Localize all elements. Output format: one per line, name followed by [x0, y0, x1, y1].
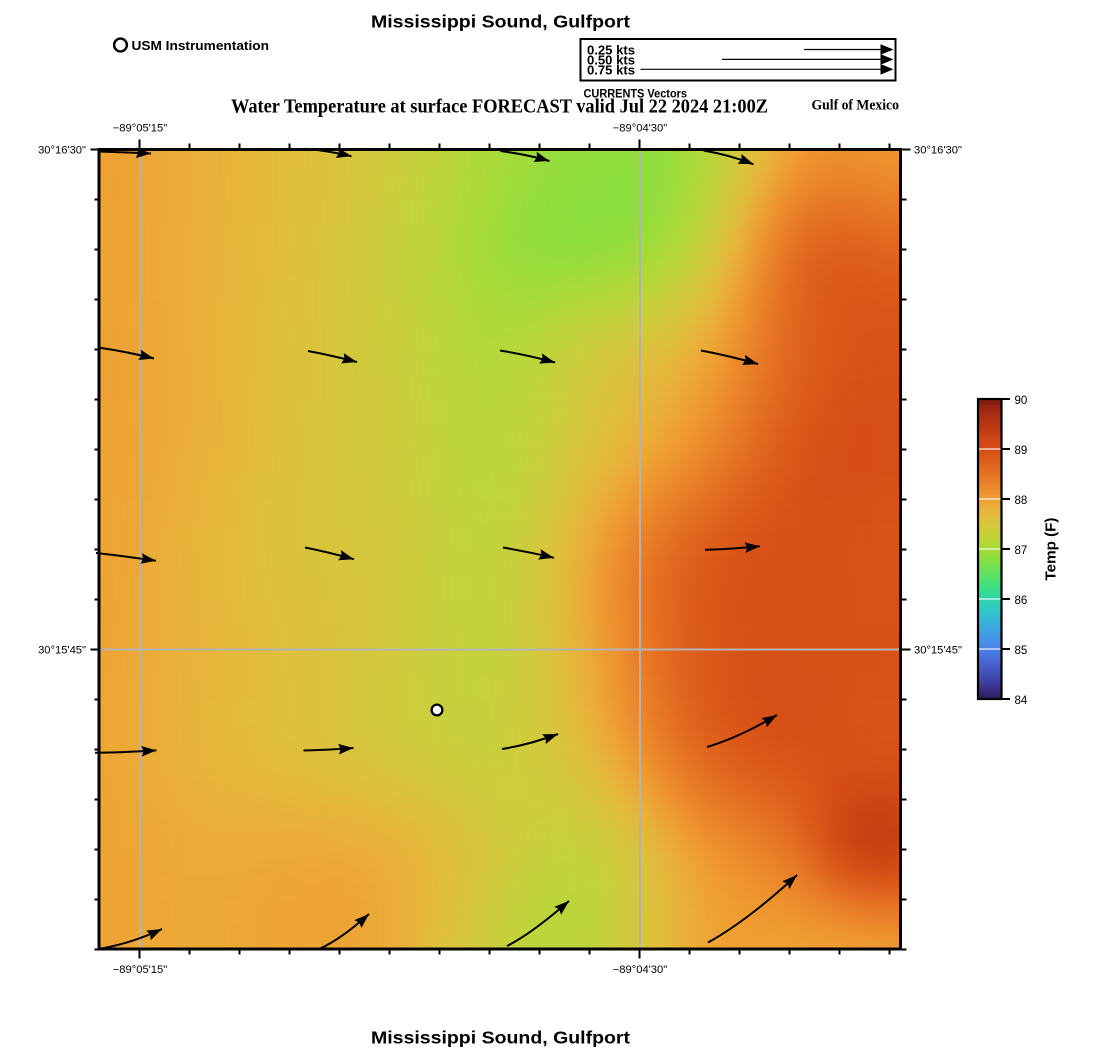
svg-text:90: 90: [1015, 395, 1028, 407]
svg-text:−89°04'30": −89°04'30": [613, 123, 667, 135]
svg-text:84: 84: [1015, 695, 1028, 707]
svg-text:0.75 kts: 0.75 kts: [587, 63, 635, 77]
svg-text:88: 88: [1015, 495, 1028, 507]
svg-text:Mississippi Sound, Gulfport: Mississippi Sound, Gulfport: [371, 11, 630, 31]
svg-text:30°15'45": 30°15'45": [914, 645, 962, 657]
svg-text:−89°05'15": −89°05'15": [113, 123, 167, 135]
svg-text:30°15'45": 30°15'45": [38, 645, 86, 657]
svg-text:Mississippi Sound, Gulfport: Mississippi Sound, Gulfport: [371, 1027, 630, 1047]
svg-text:86: 86: [1015, 595, 1028, 607]
svg-text:−89°05'15": −89°05'15": [113, 964, 167, 976]
svg-text:89: 89: [1015, 445, 1028, 457]
svg-text:30°16'30": 30°16'30": [914, 145, 962, 157]
svg-text:Water Temperature at surface F: Water Temperature at surface FORECAST va…: [231, 97, 768, 118]
svg-text:85: 85: [1015, 645, 1028, 657]
svg-text:Gulf of Mexico: Gulf of Mexico: [812, 97, 900, 114]
svg-text:87: 87: [1015, 545, 1028, 557]
svg-text:Temp (F): Temp (F): [1043, 518, 1060, 581]
svg-text:−89°04'30": −89°04'30": [613, 964, 667, 976]
svg-text:30°16'30": 30°16'30": [38, 145, 86, 157]
svg-text:USM Instrumentation: USM Instrumentation: [132, 38, 270, 53]
